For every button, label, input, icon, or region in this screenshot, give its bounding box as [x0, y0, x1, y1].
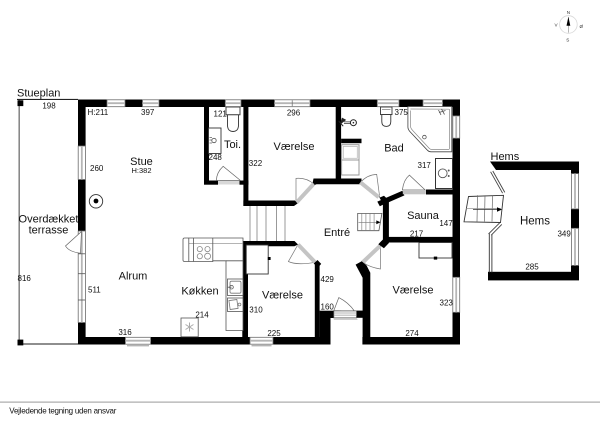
svg-text:Alrum: Alrum — [119, 270, 148, 282]
svg-text:285: 285 — [525, 263, 539, 272]
svg-text:349: 349 — [557, 230, 571, 239]
svg-text:H:211: H:211 — [88, 108, 109, 117]
svg-text:Hems: Hems — [491, 151, 520, 163]
svg-text:198: 198 — [42, 101, 56, 110]
svg-text:147: 147 — [439, 219, 453, 228]
svg-text:322: 322 — [249, 159, 263, 168]
svg-text:Værelse: Værelse — [274, 141, 315, 153]
svg-text:217: 217 — [410, 230, 424, 239]
svg-text:816: 816 — [18, 274, 32, 283]
svg-text:316: 316 — [118, 328, 132, 337]
svg-text:296: 296 — [287, 109, 301, 118]
svg-text:Værelse: Værelse — [393, 284, 434, 296]
svg-text:Sauna: Sauna — [407, 210, 440, 222]
svg-text:317: 317 — [418, 161, 432, 170]
svg-text:310: 310 — [249, 306, 263, 315]
svg-text:274: 274 — [405, 329, 419, 338]
svg-text:Bad: Bad — [384, 143, 404, 155]
svg-text:511: 511 — [88, 286, 101, 295]
svg-text:S: S — [566, 38, 569, 43]
svg-text:429: 429 — [321, 275, 335, 284]
svg-text:Vejledende tegning uden ansvar: Vejledende tegning uden ansvar — [9, 407, 116, 416]
svg-text:397: 397 — [141, 108, 155, 117]
svg-text:Stueplan: Stueplan — [17, 88, 60, 100]
svg-text:260: 260 — [90, 164, 104, 173]
svg-text:Hems: Hems — [520, 216, 550, 228]
svg-text:225: 225 — [267, 329, 281, 338]
svg-text:Værelse: Værelse — [262, 289, 303, 301]
svg-text:N: N — [567, 10, 570, 15]
svg-text:Toi.: Toi. — [224, 139, 241, 151]
svg-text:Køkken: Køkken — [181, 286, 218, 298]
svg-text:H:382: H:382 — [131, 166, 151, 175]
svg-text:121: 121 — [214, 109, 228, 118]
svg-text:160: 160 — [321, 302, 335, 311]
svg-text:terrasse: terrasse — [29, 225, 69, 237]
svg-text:375: 375 — [395, 108, 409, 117]
svg-text:Entré: Entré — [324, 227, 350, 239]
svg-text:323: 323 — [440, 298, 454, 307]
svg-text:Ø: Ø — [580, 24, 584, 29]
svg-text:248: 248 — [209, 153, 223, 162]
